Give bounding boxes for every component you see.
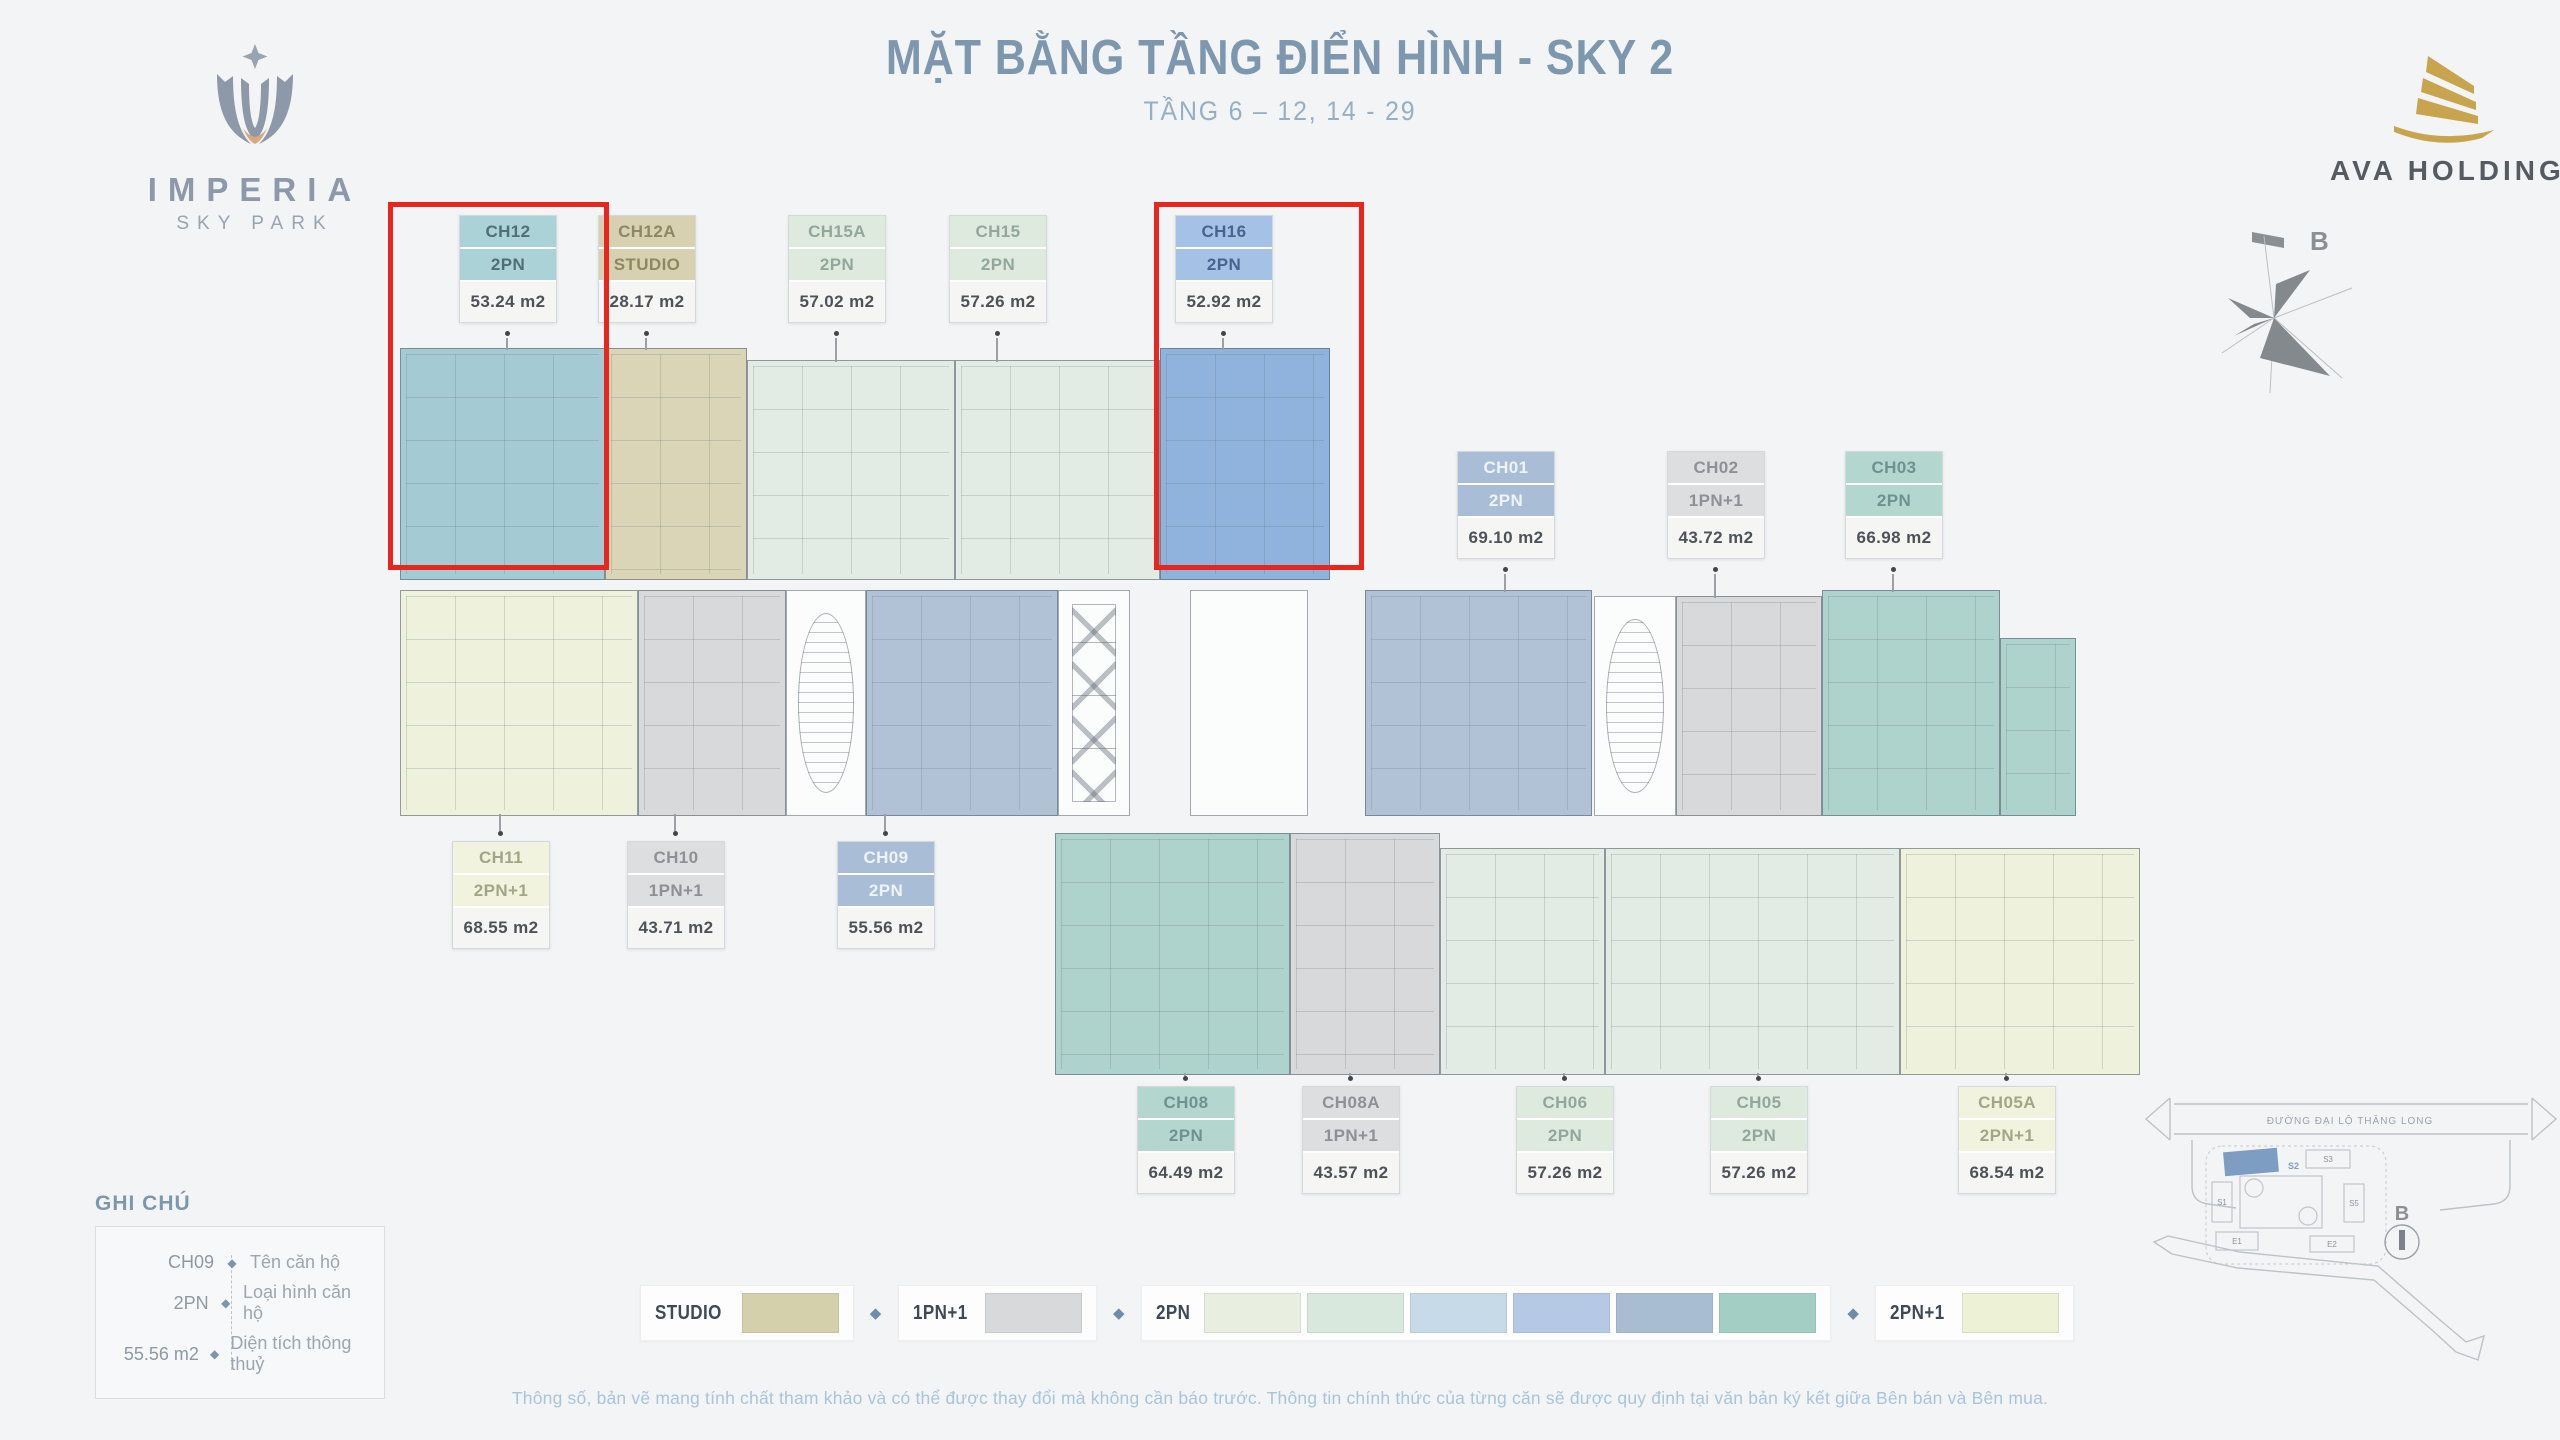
type-legend-swatch [1513, 1293, 1610, 1333]
callout-leader-dot [1503, 567, 1508, 572]
callout-leader-dot [1348, 1076, 1353, 1081]
unit-CH01 [1365, 590, 1592, 816]
callout-leader-line [674, 814, 676, 831]
callout-leader-line [1714, 574, 1716, 598]
callout-leader-dot [498, 831, 503, 836]
callout-type: 2PN [1711, 1120, 1807, 1153]
callout-area: 57.26 m2 [1711, 1153, 1807, 1193]
callout-leader-dot [1756, 1076, 1761, 1081]
callout-code: CH01 [1458, 452, 1554, 485]
callout-type: 1PN+1 [1668, 485, 1764, 518]
unit-callout-CH09: CH092PN55.56 m2 [837, 841, 935, 949]
callout-leader-line [645, 338, 647, 350]
site-map-building-s5-label: S5 [2349, 1199, 2359, 1208]
unit-CH15 [955, 360, 1160, 580]
legend-note-title: GHI CHÚ [95, 1192, 385, 1216]
callout-area: 57.02 m2 [789, 282, 885, 322]
legend-note-connector [231, 1255, 232, 1370]
unit-CH03-extension [2000, 638, 2076, 816]
type-legend: STUDIO◆1PN+1◆2PN◆2PN+1 [640, 1285, 2074, 1341]
site-map: ĐƯỜNG ĐẠI LỘ THĂNG LONG S2 S1 S3 S5 E1 E… [2140, 1090, 2560, 1425]
callout-leader-line [499, 814, 501, 831]
callout-leader-dot [834, 331, 839, 336]
type-legend-group-1pn-1: 1PN+1 [898, 1285, 1097, 1341]
unit-CH09 [866, 590, 1058, 816]
callout-area: 68.55 m2 [453, 908, 549, 948]
callout-leader-line [884, 814, 886, 831]
disclaimer-text: Thông số, bản vẽ mang tính chất tham khả… [0, 1388, 2560, 1409]
diamond-separator-icon: ◆ [1831, 1304, 1875, 1322]
callout-code: CH03 [1846, 452, 1942, 485]
callout-leader-line [1892, 574, 1894, 592]
callout-type: 2PN [1138, 1120, 1234, 1153]
callout-type: 1PN+1 [628, 875, 724, 908]
type-legend-label: 1PN+1 [913, 1302, 968, 1325]
unit-callout-CH01: CH012PN69.10 m2 [1457, 451, 1555, 559]
unit-CH06 [1440, 848, 1605, 1075]
legend-note-sample: CH09 [96, 1252, 214, 1273]
unit-callout-CH08: CH082PN64.49 m2 [1137, 1086, 1235, 1194]
callout-area: 66.98 m2 [1846, 518, 1942, 558]
callout-type: 2PN [1517, 1120, 1613, 1153]
callout-leader-line [996, 338, 998, 362]
unit-CH05 [1605, 848, 1900, 1075]
diamond-separator-icon: ◆ [854, 1304, 898, 1322]
callout-code: CH11 [453, 842, 549, 875]
callout-area: 28.17 m2 [599, 282, 695, 322]
site-map-building-s2 [2223, 1148, 2279, 1177]
legend-note-label: Tên căn hộ [250, 1252, 340, 1273]
site-map-street-label: ĐƯỜNG ĐẠI LỘ THĂNG LONG [2267, 1114, 2434, 1127]
callout-area: 43.71 m2 [628, 908, 724, 948]
callout-type: 2PN [789, 249, 885, 282]
stair-core-1 [786, 590, 866, 816]
legend-note-row: 55.56 m2◆Diện tích thông thuỷ [96, 1333, 370, 1375]
legend-note-sample: 55.56 m2 [96, 1344, 199, 1365]
callout-leader-dot [644, 331, 649, 336]
callout-code: CH02 [1668, 452, 1764, 485]
type-legend-swatch [985, 1293, 1082, 1333]
callout-type: 2PN [1846, 485, 1942, 518]
callout-leader-dot [673, 831, 678, 836]
diamond-icon: ◆ [209, 1296, 243, 1310]
unit-callout-CH12A: CH12ASTUDIO28.17 m2 [598, 215, 696, 323]
unit-callout-CH06: CH062PN57.26 m2 [1516, 1086, 1614, 1194]
site-map-building-s3-label: S3 [2323, 1155, 2333, 1164]
unit-CH02 [1676, 596, 1822, 816]
unit-CH08 [1055, 833, 1290, 1075]
diamond-icon: ◆ [199, 1347, 230, 1361]
unit-callout-CH08A: CH08A1PN+143.57 m2 [1302, 1086, 1400, 1194]
lobby-core [1190, 590, 1308, 816]
callout-type: 2PN [838, 875, 934, 908]
callout-code: CH05 [1711, 1087, 1807, 1120]
callout-code: CH06 [1517, 1087, 1613, 1120]
callout-code: CH12A [599, 216, 695, 249]
unit-CH05A [1900, 848, 2140, 1075]
diamond-separator-icon: ◆ [1097, 1304, 1141, 1322]
site-map-building-s1-label: S1 [2217, 1198, 2227, 1207]
callout-code: CH05A [1959, 1087, 2055, 1120]
callout-code: CH10 [628, 842, 724, 875]
type-legend-label: STUDIO [655, 1302, 722, 1325]
callout-leader-dot [1891, 567, 1896, 572]
type-legend-group-2pn-1: 2PN+1 [1875, 1285, 2074, 1341]
unit-CH03 [1822, 590, 2000, 816]
unit-CH11 [400, 590, 638, 816]
callout-leader-dot [883, 831, 888, 836]
callout-area: 55.56 m2 [838, 908, 934, 948]
unit-callout-CH15: CH152PN57.26 m2 [949, 215, 1047, 323]
legend-note-label: Loại hình căn hộ [243, 1282, 370, 1324]
callout-code: CH15A [789, 216, 885, 249]
callout-code: CH15 [950, 216, 1046, 249]
callout-leader-dot [1562, 1076, 1567, 1081]
callout-type: 2PN [1458, 485, 1554, 518]
callout-leader-dot [1183, 1076, 1188, 1081]
legend-note-row: 2PN◆Loại hình căn hộ [96, 1282, 370, 1324]
type-legend-group-2pn: 2PN [1141, 1285, 1831, 1341]
type-legend-swatch [1616, 1293, 1713, 1333]
callout-area: 43.57 m2 [1303, 1153, 1399, 1193]
type-legend-swatch [1719, 1293, 1816, 1333]
unit-callout-CH15A: CH15A2PN57.02 m2 [788, 215, 886, 323]
callout-leader-dot [2004, 1076, 2009, 1081]
callout-leader-line [835, 338, 837, 362]
unit-CH12A [605, 348, 747, 580]
callout-leader-dot [995, 331, 1000, 336]
type-legend-swatch [742, 1293, 839, 1333]
legend-note-label: Diện tích thông thuỷ [230, 1333, 370, 1375]
callout-type: STUDIO [599, 249, 695, 282]
unit-CH10 [638, 590, 786, 816]
unit-CH08A [1290, 833, 1440, 1075]
type-legend-group-studio: STUDIO [640, 1285, 854, 1341]
callout-area: 68.54 m2 [1959, 1153, 2055, 1193]
callout-type: 1PN+1 [1303, 1120, 1399, 1153]
diamond-icon: ◆ [214, 1256, 250, 1270]
callout-code: CH08 [1138, 1087, 1234, 1120]
callout-area: 69.10 m2 [1458, 518, 1554, 558]
unit-callout-CH05: CH052PN57.26 m2 [1710, 1086, 1808, 1194]
callout-code: CH08A [1303, 1087, 1399, 1120]
type-legend-swatch [1962, 1293, 2059, 1333]
legend-note: GHI CHÚ CH09◆Tên căn hộ2PN◆Loại hình căn… [95, 1192, 385, 1399]
unit-callout-CH10: CH101PN+143.71 m2 [627, 841, 725, 949]
type-legend-swatch [1307, 1293, 1404, 1333]
site-map-building-e1-label: E1 [2232, 1237, 2242, 1246]
callout-type: 2PN [950, 249, 1046, 282]
legend-note-row: CH09◆Tên căn hộ [96, 1252, 370, 1273]
callout-area: 57.26 m2 [1517, 1153, 1613, 1193]
site-map-building-s2-label: S2 [2288, 1161, 2299, 1171]
unit-callout-CH02: CH021PN+143.72 m2 [1667, 451, 1765, 559]
unit-callout-CH11: CH112PN+168.55 m2 [452, 841, 550, 949]
unit-CH15A [747, 360, 955, 580]
highlight-box-CH16 [1154, 202, 1364, 570]
callout-type: 2PN+1 [1959, 1120, 2055, 1153]
legend-note-sample: 2PN [96, 1293, 209, 1314]
floor-plan-page: IMPERIA SKY PARK MẶT BẰNG TẦNG ĐIỂN HÌNH… [0, 0, 2560, 1440]
type-legend-swatch [1204, 1293, 1301, 1333]
unit-callout-CH05A: CH05A2PN+168.54 m2 [1958, 1086, 2056, 1194]
callout-area: 57.26 m2 [950, 282, 1046, 322]
site-map-compass-label: B [2395, 1203, 2409, 1225]
elevator-core [1058, 590, 1130, 816]
site-map-building-e2-label: E2 [2327, 1240, 2337, 1249]
legend-note-box: CH09◆Tên căn hộ2PN◆Loại hình căn hộ55.56… [95, 1226, 385, 1399]
callout-leader-line [1504, 574, 1506, 592]
callout-area: 43.72 m2 [1668, 518, 1764, 558]
callout-type: 2PN+1 [453, 875, 549, 908]
type-legend-label: 2PN [1156, 1302, 1190, 1325]
type-legend-swatch [1410, 1293, 1507, 1333]
highlight-box-CH12 [388, 202, 609, 570]
unit-callout-CH03: CH032PN66.98 m2 [1845, 451, 1943, 559]
type-legend-label: 2PN+1 [1890, 1302, 1945, 1325]
stair-core-2 [1594, 596, 1676, 816]
callout-code: CH09 [838, 842, 934, 875]
callout-area: 64.49 m2 [1138, 1153, 1234, 1193]
callout-leader-dot [1713, 567, 1718, 572]
